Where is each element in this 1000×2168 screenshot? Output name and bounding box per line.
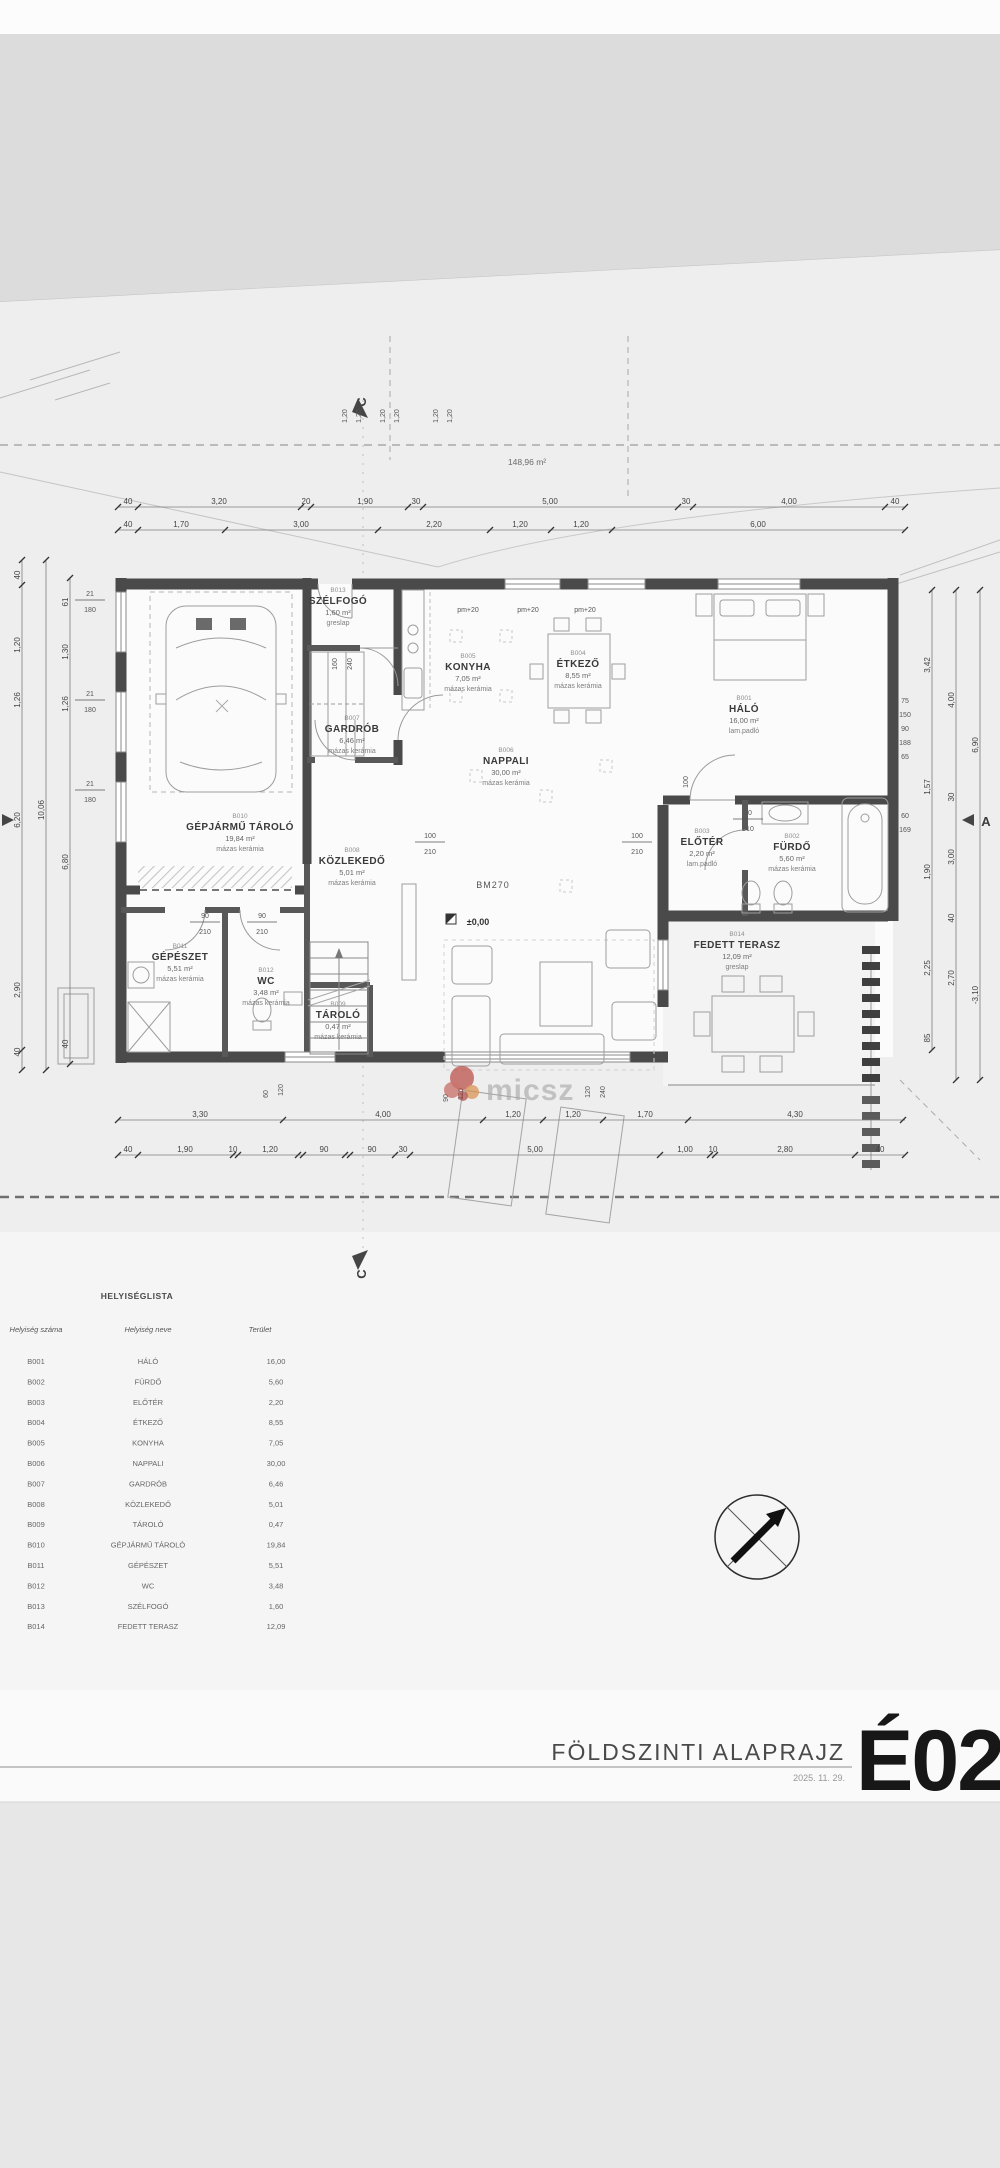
window-top-dining — [588, 579, 645, 589]
room-floor-material: mázas kerámia — [768, 866, 816, 873]
dim-label: 40 — [124, 520, 133, 529]
dim-label: 150 — [899, 712, 911, 719]
table-cell-room-number: B012 — [27, 1581, 45, 1590]
room-floor-material: lam.padló — [729, 728, 759, 735]
room-floor-material: mázas kerámia — [444, 686, 492, 693]
room-name: HÁLÓ — [729, 702, 759, 715]
room-area: 5,01 m² — [339, 868, 365, 877]
dim-label: 40 — [13, 1047, 22, 1056]
dim-label: 75 — [901, 698, 909, 705]
dim-label: 210 — [256, 929, 268, 936]
table-cell-room-name: NAPPALI — [132, 1459, 163, 1468]
dim-label: 60 — [901, 813, 909, 820]
svg-text:±0,00: ±0,00 — [467, 917, 489, 927]
room-code: B006 — [498, 747, 514, 754]
room-code: B007 — [344, 715, 360, 722]
table-cell-room-area: 0,47 — [269, 1520, 284, 1529]
table-cell-room-area: 6,46 — [269, 1479, 284, 1488]
table-cell-room-number: B006 — [27, 1459, 45, 1468]
room-code: B011 — [173, 943, 188, 950]
table-cell-room-number: B005 — [27, 1439, 45, 1448]
table-cell-room-area: 16,00 — [267, 1357, 286, 1366]
dim-label: 210 — [424, 849, 436, 856]
dim-label: 120 — [278, 1084, 285, 1096]
table-cell-room-number: B003 — [27, 1398, 45, 1407]
table-cell-room-name: GÉPJÁRMŰ TÁROLÓ — [111, 1541, 186, 1550]
dim-label: 100 — [683, 776, 690, 788]
room-name: GÉPJÁRMŰ TÁROLÓ — [186, 820, 294, 833]
dim-label: 210 — [199, 929, 211, 936]
svg-text:A: A — [981, 814, 991, 829]
dim-label: 21 — [86, 591, 94, 598]
plan-canvas: 148,96 m² BM270 ±0,00 C C A 403,20201,90… — [0, 0, 1000, 2168]
room-floor-material: greslap — [327, 620, 350, 627]
table-cell-room-number: B014 — [27, 1622, 45, 1631]
dim-label: 1,57 — [923, 779, 932, 795]
dim-label: 1,20 — [342, 409, 349, 423]
dim-label: 3,30 — [192, 1110, 208, 1119]
table-cell-room-name: HÁLÓ — [138, 1357, 159, 1366]
room-area: 6,46 m² — [339, 736, 365, 745]
table-cell-room-area: 5,01 — [269, 1500, 284, 1509]
dim-label: 1,26 — [61, 696, 70, 712]
sheet-date: 2025. 11. 29. — [793, 1773, 845, 1783]
table-column-header: Helyiség száma — [10, 1325, 63, 1334]
table-cell-room-name: WC — [142, 1581, 155, 1590]
floorplan-sheet: 148,96 m² BM270 ±0,00 C C A 403,20201,90… — [0, 0, 1000, 2168]
room-name: WC — [257, 976, 274, 987]
room-area: 30,00 m² — [491, 768, 521, 777]
dim-label: 1,20 — [356, 409, 363, 423]
garage-ramp-hatch — [138, 866, 292, 888]
table-cell-room-area: 12,09 — [267, 1622, 286, 1631]
dim-label: 2,70 — [947, 970, 956, 986]
dim-label: 1,20 — [573, 520, 589, 529]
dim-label: 40 — [13, 570, 22, 579]
table-cell-room-number: B011 — [28, 1561, 45, 1570]
dim-label: pm+20 — [517, 607, 539, 614]
window-bottom-living — [445, 1052, 630, 1062]
dim-label: pm+20 — [574, 607, 596, 614]
room-name: TÁROLÓ — [316, 1008, 361, 1021]
dim-label: 90 — [201, 913, 209, 920]
dim-label: 100 — [424, 833, 436, 840]
table-cell-room-name: ÉTKEZŐ — [133, 1418, 163, 1427]
dim-label: 90 — [744, 810, 752, 817]
table-cell-room-name: KÖZLEKEDŐ — [125, 1500, 171, 1509]
dim-label: 30 — [412, 497, 421, 506]
dim-label: 2,90 — [13, 982, 22, 998]
room-name: GÉPÉSZET — [152, 950, 209, 963]
window-left-1 — [116, 592, 126, 652]
dim-label: 1,20 — [433, 409, 440, 423]
room-area: 8,55 m² — [565, 671, 591, 680]
table-cell-room-number: B009 — [27, 1520, 45, 1529]
table-column-header: Terület — [249, 1325, 273, 1334]
dim-label: 21 — [86, 691, 94, 698]
room-area: 5,51 m² — [167, 964, 193, 973]
dim-label: 6,00 — [750, 520, 766, 529]
dim-label: 3,00 — [947, 849, 956, 865]
dim-label: 90 — [258, 913, 266, 920]
dim-label: 240 — [600, 1086, 607, 1098]
dim-label: pm+20 — [457, 607, 479, 614]
room-area: 2,20 m² — [689, 849, 715, 858]
site-area-note: 148,96 m² — [508, 457, 546, 467]
table-cell-room-name: SZÉLFOGÓ — [128, 1602, 169, 1611]
room-code: B004 — [570, 650, 586, 657]
table-cell-room-area: 1,60 — [269, 1602, 284, 1611]
room-area: 3,48 m² — [253, 988, 279, 997]
dim-label: 61 — [61, 597, 70, 606]
room-floor-material: mázas kerámia — [554, 683, 602, 690]
dim-label: 90 — [368, 1145, 377, 1154]
table-cell-room-area: 5,60 — [269, 1377, 284, 1386]
dim-label: 6,90 — [971, 737, 980, 753]
table-cell-room-name: FÜRDŐ — [135, 1377, 162, 1386]
table-cell-room-area: 30,00 — [267, 1459, 286, 1468]
room-name: SZÉLFOGÓ — [309, 594, 367, 607]
table-cell-room-name: GARDRÓB — [129, 1479, 167, 1488]
room-name: FÜRDŐ — [773, 840, 811, 853]
dim-label: 30 — [682, 497, 691, 506]
room-area: 1,60 m² — [325, 608, 351, 617]
dim-label: 90 — [901, 726, 909, 733]
room-name: GARDRÓB — [325, 722, 379, 735]
table-cell-room-name: TÁROLÓ — [133, 1520, 164, 1529]
dim-label: -3,10 — [971, 985, 980, 1004]
dim-label: 60 — [263, 1090, 270, 1098]
dim-label: 40 — [891, 497, 900, 506]
room-floor-material: lam.padló — [687, 861, 717, 868]
table-cell-room-name: ELŐTÉR — [133, 1398, 164, 1407]
table-cell-room-area: 8,55 — [269, 1418, 284, 1427]
dim-label: 30 — [399, 1145, 408, 1154]
dim-label: 1,30 — [61, 644, 70, 660]
sheet-code: É02 — [856, 1713, 1000, 1809]
dim-label: 1,70 — [173, 520, 189, 529]
dim-label: 40 — [876, 1145, 885, 1154]
dim-label: 40 — [947, 913, 956, 922]
dim-label: 10,06 — [37, 799, 46, 820]
table-cell-room-number: B010 — [27, 1541, 45, 1550]
table-cell-room-area: 5,51 — [269, 1561, 284, 1570]
beam-mark: BM270 — [476, 880, 510, 890]
dim-label: 3,20 — [211, 497, 227, 506]
dim-label: 1,20 — [447, 409, 454, 423]
room-name: NAPPALI — [483, 756, 529, 767]
dim-label: 5,00 — [542, 497, 558, 506]
dim-label: 1,90 — [923, 864, 932, 880]
dim-label: 40 — [124, 1145, 133, 1154]
dim-label: 40 — [61, 1039, 70, 1048]
table-cell-room-name: GÉPÉSZET — [128, 1561, 168, 1570]
room-name: KONYHA — [445, 662, 491, 673]
room-code: B012 — [258, 967, 274, 974]
room-area: 16,00 m² — [729, 716, 759, 725]
room-floor-material: mázas kerámia — [482, 780, 530, 787]
room-code: B001 — [736, 695, 752, 702]
window-top-bedroom — [718, 579, 800, 589]
room-name: FEDETT TERASZ — [694, 940, 781, 951]
dim-label: 40 — [124, 497, 133, 506]
room-floor-material: mázas kerámia — [216, 846, 264, 853]
table-cell-room-number: B004 — [27, 1418, 45, 1427]
dim-label: 30 — [947, 792, 956, 801]
watermark-text: micsz — [486, 1074, 574, 1107]
dim-label: 240 — [347, 658, 354, 670]
room-name: ÉTKEZŐ — [557, 657, 600, 670]
dim-label: 1,20 — [13, 637, 22, 653]
dim-label: 21 — [86, 781, 94, 788]
table-cell-room-number: B007 — [27, 1479, 45, 1488]
room-code: B003 — [694, 828, 710, 835]
sheet-title: FÖLDSZINTI ALAPRAJZ — [551, 1739, 845, 1765]
dim-label: 1,90 — [177, 1145, 193, 1154]
dim-label: 20 — [302, 497, 311, 506]
table-column-header: Helyiség neve — [124, 1325, 171, 1334]
dim-label: 180 — [84, 797, 96, 804]
table-cell-room-area: 7,05 — [269, 1439, 284, 1448]
dim-label: 4,30 — [787, 1110, 803, 1119]
room-code: B005 — [460, 653, 476, 660]
table-cell-room-number: B008 — [27, 1500, 45, 1509]
dim-label: 6,80 — [61, 854, 70, 870]
dim-label: 1,20 — [512, 520, 528, 529]
dim-label: 10 — [709, 1145, 718, 1154]
dim-label: 90 — [320, 1145, 329, 1154]
dim-label: 1,90 — [357, 497, 373, 506]
table-cell-room-name: KONYHA — [132, 1439, 164, 1448]
room-list-title: HELYISÉGLISTA — [101, 1291, 174, 1301]
window-left-2 — [116, 692, 126, 752]
table-cell-room-area: 3,48 — [269, 1581, 284, 1590]
room-code: B010 — [232, 813, 248, 820]
dim-label: 100 — [631, 833, 643, 840]
dim-label: 210 — [631, 849, 643, 856]
dim-label: 169 — [899, 827, 911, 834]
room-area: 0,47 m² — [325, 1022, 351, 1031]
room-code: B014 — [729, 931, 745, 938]
dim-label: 1,20 — [380, 409, 387, 423]
dim-label: 2,25 — [923, 960, 932, 976]
dim-label: 210 — [742, 826, 754, 833]
room-code: B013 — [330, 587, 346, 594]
dim-label: 180 — [84, 707, 96, 714]
room-code: B002 — [784, 833, 800, 840]
dim-label: 1,70 — [637, 1110, 653, 1119]
dim-label: 6,20 — [13, 812, 22, 828]
table-cell-room-number: B013 — [27, 1602, 45, 1611]
room-floor-material: mázas kerámia — [314, 1034, 362, 1041]
dim-label: 1,00 — [677, 1145, 693, 1154]
dim-label: 160 — [332, 658, 339, 670]
room-area: 5,60 m² — [779, 854, 805, 863]
dim-label: 3,42 — [923, 657, 932, 673]
dim-label: 180 — [84, 607, 96, 614]
dim-label: 1,20 — [505, 1110, 521, 1119]
dim-label: 5,00 — [527, 1145, 543, 1154]
dim-label: 3,00 — [293, 520, 309, 529]
room-code: B009 — [330, 1001, 346, 1008]
dim-label: 4,00 — [947, 692, 956, 708]
dim-label: 1,20 — [262, 1145, 278, 1154]
window-left-3 — [116, 782, 126, 842]
svg-text:C: C — [354, 1269, 369, 1279]
room-name: KÖZLEKEDŐ — [319, 854, 385, 867]
room-code: B008 — [344, 847, 360, 854]
dim-label: 1,26 — [13, 692, 22, 708]
room-area: 7,05 m² — [455, 674, 481, 683]
dim-label: 4,00 — [781, 497, 797, 506]
table-cell-room-name: FEDETT TERASZ — [118, 1622, 179, 1631]
dim-label: 10 — [229, 1145, 238, 1154]
room-floor-material: mázas kerámia — [328, 880, 376, 887]
room-area: 12,09 m² — [722, 952, 752, 961]
room-floor-material: mázas kerámia — [156, 976, 204, 983]
room-floor-material: mázas kerámia — [328, 748, 376, 755]
dim-label: 1,20 — [394, 409, 401, 423]
dim-label: 120 — [585, 1086, 592, 1098]
room-area: 19,84 m² — [225, 834, 255, 843]
room-name: ELŐTÉR — [681, 835, 724, 848]
room-floor-material: greslap — [726, 964, 749, 971]
dim-label: 188 — [899, 740, 911, 747]
dim-label: 85 — [923, 1033, 932, 1042]
table-cell-room-number: B002 — [27, 1377, 45, 1386]
table-cell-room-area: 19,84 — [267, 1541, 286, 1550]
room-floor-material: mázas kerámia — [242, 1000, 290, 1007]
table-cell-room-number: B001 — [27, 1357, 45, 1366]
door-terrace-sliding — [658, 940, 668, 990]
window-top-kitchen — [505, 579, 560, 589]
dim-label: 2,20 — [426, 520, 442, 529]
dim-label: 4,00 — [375, 1110, 391, 1119]
dim-label: 1,20 — [565, 1110, 581, 1119]
dim-label: 65 — [901, 754, 909, 761]
dim-label: 2,80 — [777, 1145, 793, 1154]
table-cell-room-area: 2,20 — [269, 1398, 284, 1407]
